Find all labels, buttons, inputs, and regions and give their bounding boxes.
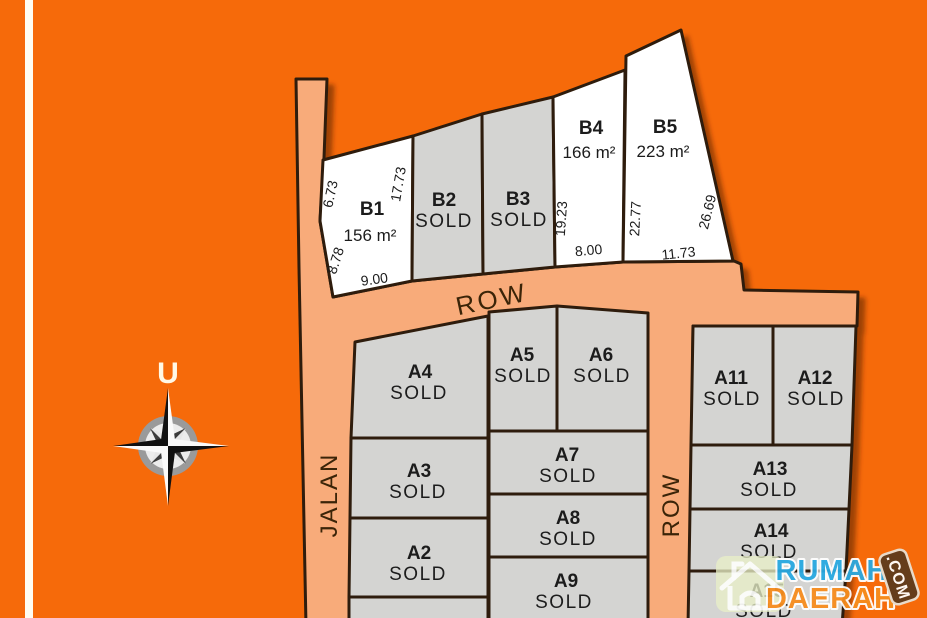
plot-a13: A13 SOLD: [690, 445, 852, 509]
dimension-b5-left: 22.77: [626, 201, 644, 237]
plot-a11: A11 SOLD: [691, 326, 773, 445]
watermark-brand-line2: DAERAH: [766, 583, 896, 615]
plot-status: SOLD: [389, 564, 447, 585]
plot-status: SOLD: [740, 480, 798, 501]
plot-status: SOLD: [539, 529, 597, 550]
compass-north-label: U: [157, 357, 179, 390]
plot-status: SOLD: [535, 592, 593, 613]
plot-status: SOLD: [490, 210, 548, 231]
plot-area: 223 m²: [637, 142, 690, 161]
plot-area: 166 m²: [563, 143, 616, 162]
plot-b3: B3 SOLD: [482, 97, 555, 274]
plot-id: A13: [753, 459, 788, 480]
plot-id: B2: [432, 190, 456, 211]
plot-id: A14: [754, 521, 789, 542]
plot-a8: A8 SOLD: [489, 494, 648, 557]
plot-id: B1: [360, 199, 385, 220]
plot-id: A7: [555, 445, 579, 466]
site-plan-page: B1 156 m² B2 SOLD B3 SOLD B4 166 m² B5 2…: [0, 0, 927, 618]
plot-a2: A2 SOLD: [349, 518, 488, 597]
plot-id: A9: [554, 571, 578, 592]
plot-a5: A5 SOLD: [489, 306, 557, 431]
plot-a9: A9 SOLD: [489, 557, 648, 618]
plot-status: SOLD: [390, 383, 448, 404]
plot-id: A2: [407, 543, 431, 564]
plot-status: SOLD: [787, 389, 845, 410]
plot-id: B5: [653, 117, 678, 138]
plot-a12: A12 SOLD: [773, 326, 856, 445]
site-plan-map: B1 156 m² B2 SOLD B3 SOLD B4 166 m² B5 2…: [0, 0, 927, 618]
watermark: RUMAH DAERAH .COM: [716, 548, 920, 615]
plot-a6: A6 SOLD: [557, 306, 648, 431]
plot-id: A8: [556, 508, 580, 529]
road-label-jalan: JALAN: [316, 453, 343, 538]
plot-b2: B2 SOLD: [412, 114, 483, 281]
left-margin-stripe: [25, 0, 33, 618]
plot-area: 156 m²: [344, 226, 397, 245]
plot-id: B4: [579, 118, 604, 139]
plot-id: B3: [506, 189, 530, 210]
plot-a1-partial: [349, 597, 488, 618]
plot-id: A11: [714, 368, 748, 389]
plot-id: A12: [798, 368, 833, 389]
plot-a7: A7 SOLD: [489, 431, 648, 494]
plot-status: SOLD: [415, 211, 473, 232]
road-label-row-right: ROW: [658, 473, 685, 538]
dimension-b4-left: 19.23: [552, 200, 570, 236]
plot-id: A4: [408, 362, 433, 383]
plot-status: SOLD: [389, 482, 447, 503]
plot-id: A6: [589, 345, 613, 366]
plot-status: SOLD: [539, 466, 597, 487]
dimension-b4-bottom: 8.00: [574, 241, 603, 259]
plot-status: SOLD: [703, 389, 761, 410]
plot-status: SOLD: [573, 366, 631, 387]
plot-status: SOLD: [494, 366, 552, 387]
plot-id: A3: [407, 461, 431, 482]
plot-a3: A3 SOLD: [350, 438, 488, 518]
plot-b4: B4 166 m²: [553, 70, 625, 267]
plot-id: A5: [510, 345, 535, 366]
